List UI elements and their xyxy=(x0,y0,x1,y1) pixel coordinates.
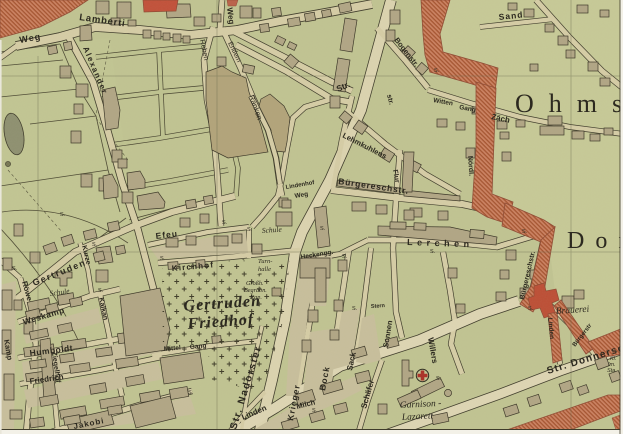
svg-text:Kap.: Kap. xyxy=(249,294,262,301)
svg-text:S.: S. xyxy=(430,249,436,255)
svg-text:S.: S. xyxy=(312,408,318,414)
svg-text:S.: S. xyxy=(528,306,534,312)
svg-text:Don: Don xyxy=(567,228,623,254)
svg-text:S.: S. xyxy=(434,68,440,74)
svg-text:Schule: Schule xyxy=(262,225,283,235)
svg-text:Turn-: Turn- xyxy=(258,258,272,265)
svg-text:Lazarett: Lazarett xyxy=(401,411,434,423)
svg-text:Gang: Gang xyxy=(190,343,207,351)
svg-text:Nördl.: Nördl. xyxy=(466,156,474,177)
svg-text:Begräbn.: Begräbn. xyxy=(244,287,267,294)
svg-text:S.: S. xyxy=(342,254,348,260)
svg-text:Mittel: Mittel xyxy=(164,345,182,353)
svg-text:S.: S. xyxy=(247,227,253,233)
svg-text:S.: S. xyxy=(436,376,442,382)
svg-text:S.: S. xyxy=(222,220,228,226)
svg-text:halle: halle xyxy=(258,266,271,273)
svg-text:S.: S. xyxy=(522,229,528,235)
svg-text:S.: S. xyxy=(160,256,166,262)
svg-text:Ohms: Ohms xyxy=(515,89,623,118)
svg-text:S.: S. xyxy=(92,242,98,248)
svg-text:S.: S. xyxy=(352,306,358,312)
svg-text:Stern: Stern xyxy=(371,303,386,310)
svg-text:S.: S. xyxy=(320,226,326,232)
svg-text:S.: S. xyxy=(12,266,18,272)
svg-text:Sta.: Sta. xyxy=(607,368,617,374)
svg-text:S.: S. xyxy=(98,288,104,294)
svg-text:S.: S. xyxy=(60,212,66,218)
svg-text:Großh.: Großh. xyxy=(246,280,263,287)
svg-text:S.: S. xyxy=(188,390,194,396)
